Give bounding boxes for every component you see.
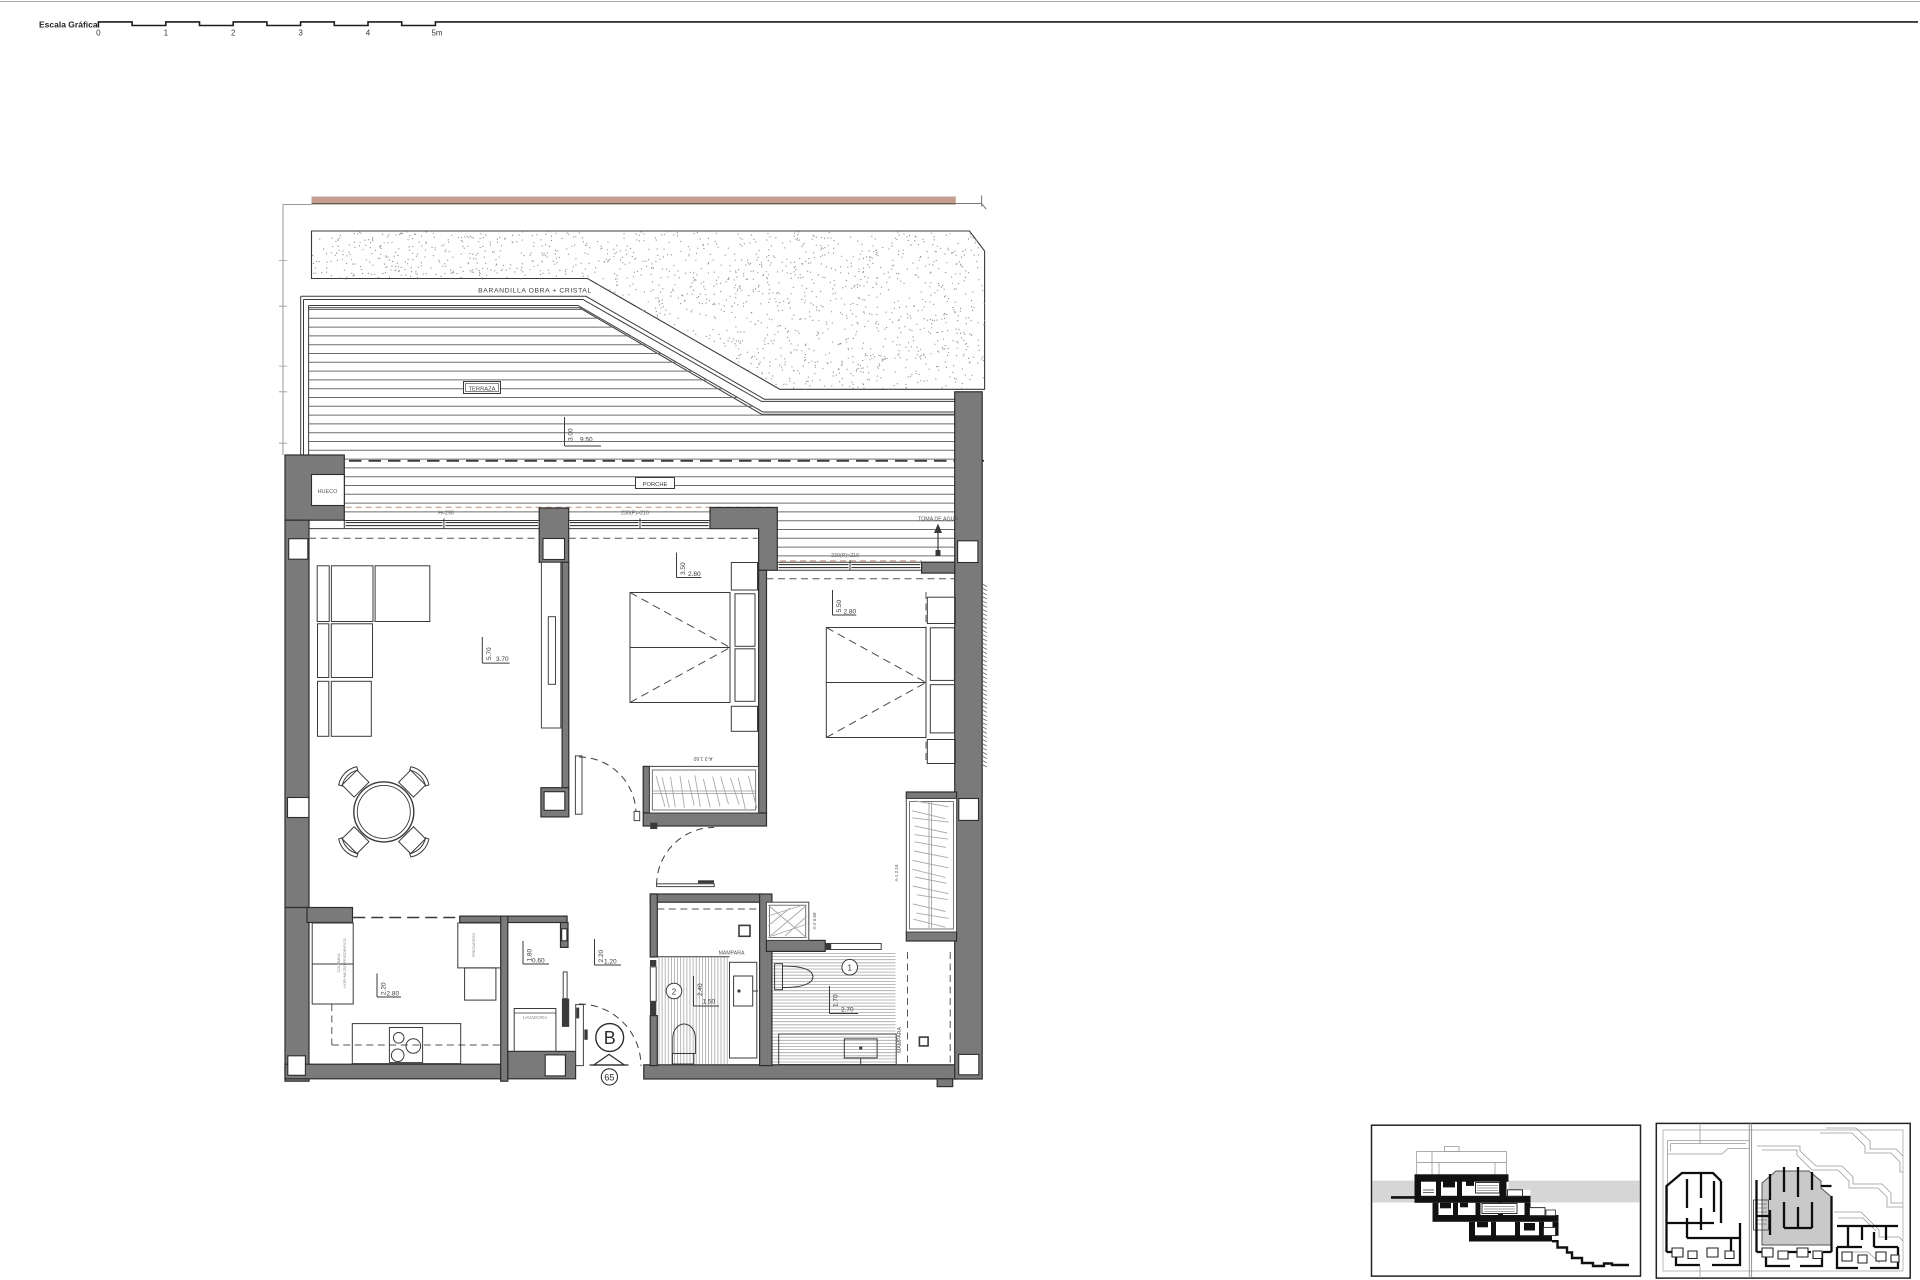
svg-text:65: 65 <box>604 1072 614 1082</box>
svg-text:HUECO: HUECO <box>318 489 339 495</box>
svg-text:FREGADERO: FREGADERO <box>472 933 476 957</box>
svg-text:9.50: 9.50 <box>580 437 593 444</box>
svg-text:TERRAZA: TERRAZA <box>468 386 495 392</box>
svg-text:TOMA DE AGUA: TOMA DE AGUA <box>918 517 958 523</box>
svg-text:2.40: 2.40 <box>697 983 704 996</box>
svg-text:HOR+MICRO FRIGORIFICO: HOR+MICRO FRIGORIFICO <box>343 938 347 987</box>
svg-text:2: 2 <box>231 29 236 38</box>
svg-text:LAVADORA: LAVADORA <box>523 1015 548 1020</box>
svg-text:MAMPARA: MAMPARA <box>719 951 745 957</box>
svg-text:3: 3 <box>298 29 303 38</box>
svg-text:5.70: 5.70 <box>486 647 493 660</box>
svg-text:Escala Gráfica: Escala Gráfica <box>39 20 98 30</box>
svg-text:A-3 1.60: A-3 1.60 <box>693 755 712 761</box>
svg-text:COLUMNA: COLUMNA <box>337 953 341 972</box>
svg-text:A-1 2.18: A-1 2.18 <box>894 864 899 882</box>
svg-text:1: 1 <box>847 964 852 973</box>
svg-text:BARANDILLA OBRA + CRISTAL: BARANDILLA OBRA + CRISTAL <box>478 288 592 295</box>
svg-text:1.70: 1.70 <box>833 994 840 1007</box>
svg-text:1.20: 1.20 <box>604 959 617 966</box>
svg-text:4: 4 <box>366 29 371 38</box>
svg-text:3.50: 3.50 <box>680 562 687 575</box>
svg-text:3.70: 3.70 <box>496 656 509 663</box>
svg-text:1.50: 1.50 <box>703 999 716 1006</box>
svg-text:PORCHE: PORCHE <box>643 482 668 488</box>
svg-text:A-2 0.68: A-2 0.68 <box>812 912 817 930</box>
svg-text:2.80: 2.80 <box>844 609 857 616</box>
svg-text:H<290: H<290 <box>438 511 454 517</box>
svg-text:0.60: 0.60 <box>532 958 545 965</box>
svg-text:B: B <box>604 1028 616 1048</box>
svg-text:230(P)>210: 230(P)>210 <box>831 553 859 559</box>
svg-text:2.70: 2.70 <box>841 1007 854 1014</box>
svg-text:3.00: 3.00 <box>568 428 575 441</box>
svg-text:1: 1 <box>164 29 169 38</box>
svg-text:5.50: 5.50 <box>836 599 843 612</box>
svg-text:5m: 5m <box>431 29 442 38</box>
svg-text:2.80: 2.80 <box>387 991 400 998</box>
svg-text:2: 2 <box>672 987 677 996</box>
svg-text:230(P)>210: 230(P)>210 <box>621 511 649 517</box>
svg-text:MAMPARA: MAMPARA <box>897 1027 903 1053</box>
svg-text:0: 0 <box>96 29 101 38</box>
svg-text:2.80: 2.80 <box>688 571 701 578</box>
